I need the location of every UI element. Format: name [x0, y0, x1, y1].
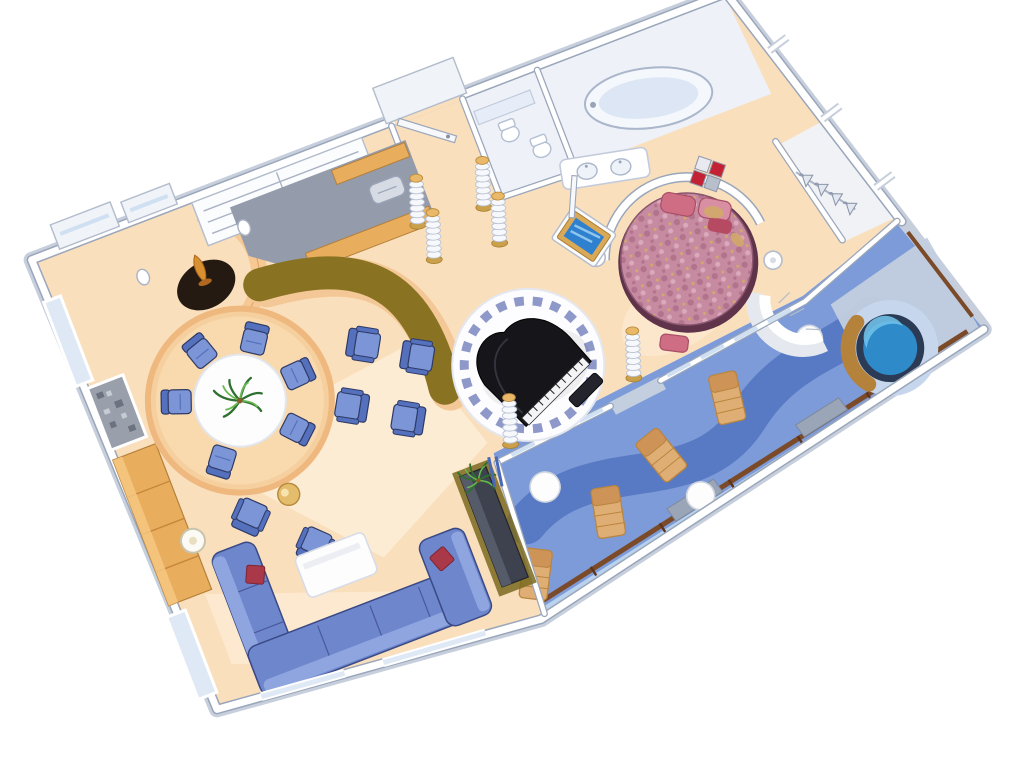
illustration-stage: [0, 0, 1024, 768]
red-pillow: [246, 565, 265, 584]
floor-plan-illustration: [0, 0, 1024, 768]
dining-chair: [161, 390, 191, 415]
bed-ottoman: [659, 334, 689, 353]
suite: [14, 0, 1024, 745]
